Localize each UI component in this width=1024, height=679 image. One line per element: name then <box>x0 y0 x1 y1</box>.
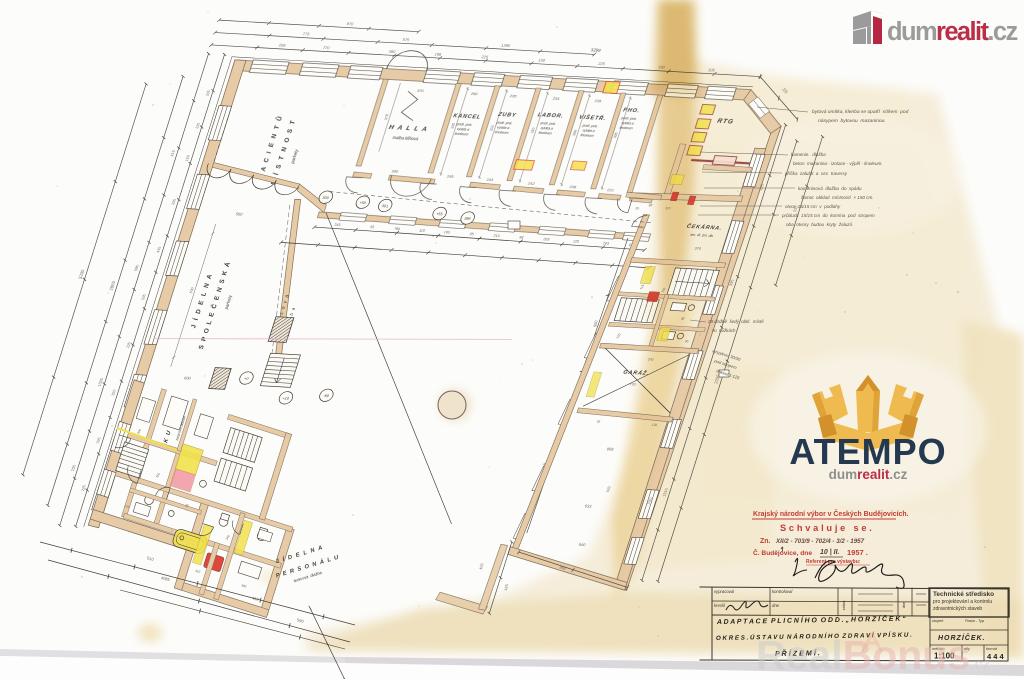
svg-text:RealBonus.cz: RealBonus.cz <box>756 632 990 678</box>
svg-text:PHO.: PHO. <box>622 108 640 115</box>
svg-text:násypem bytovou mazaninou.: násypem bytovou mazaninou. <box>818 118 886 124</box>
svg-text:vylátá a: vylátá a <box>582 129 596 134</box>
svg-text:XII/2 - 703/9 - 702/4 - 3/2 -: XII/2 - 703/9 - 702/4 - 3/2 - 1957 <box>775 538 865 545</box>
svg-text:Schvaluje se.: Schvaluje se. <box>780 523 875 533</box>
svg-text:linoleum: linoleum <box>538 131 553 136</box>
svg-text:pro projektování a kontrolu: pro projektování a kontrolu <box>933 599 992 605</box>
svg-text:průduch 15/15 cm do komína: průduch 15/15 cm do komína pod stropem <box>781 212 875 218</box>
svg-text:kontroloval: kontroloval <box>772 589 793 594</box>
svg-text:300: 300 <box>322 196 330 200</box>
svg-text:203: 203 <box>543 237 550 241</box>
svg-text:ATEMPO: ATEMPO <box>789 431 946 472</box>
svg-text:301: 301 <box>381 204 389 208</box>
svg-text:zdravotnických staveb: zdravotnických staveb <box>933 606 982 612</box>
svg-text:789: 789 <box>394 227 401 231</box>
svg-text:+55: +55 <box>436 212 444 216</box>
svg-text:370: 370 <box>694 247 702 251</box>
svg-text:+10: +10 <box>282 396 290 400</box>
svg-text:243: 243 <box>334 223 341 227</box>
svg-text:šamot obklad místností × 15: šamot obklad místností × 150 cm. <box>801 195 874 200</box>
svg-text:ZUBY: ZUBY <box>496 112 517 119</box>
svg-text:3298: 3298 <box>590 47 602 52</box>
svg-text:příčka zalubit a oss trave: příčka zalubit a oss traversy <box>784 171 848 176</box>
svg-text:linoleum: linoleum <box>494 130 509 135</box>
svg-text:kamenin. dlažba: kamenin. dlažba <box>791 152 826 157</box>
svg-text:dumrealit.cz: dumrealit.cz <box>829 467 908 482</box>
svg-text:oba otvory budou kryty žal: oba otvory budou kryty žaluzií. <box>786 222 853 227</box>
svg-text:Technické středisko: Technické středisko <box>933 591 994 598</box>
svg-text:vo nožkách: vo nožkách <box>712 328 736 333</box>
svg-text:zařad.: zařad. <box>842 600 846 611</box>
svg-text:vypracoval: vypracoval <box>714 589 735 594</box>
svg-text:linoleum: linoleum <box>454 132 469 137</box>
svg-text:bytová omítka, klenba se opatř: bytová omítka, klenba se opatří síťkem p… <box>812 109 909 115</box>
svg-text:10 | II.: 10 | II. <box>820 549 840 556</box>
svg-text:29 dlažbě šedý obkl. místě: 29 dlažbě šedý obkl. místě <box>707 319 764 324</box>
svg-text:RTG: RTG <box>716 118 735 126</box>
svg-text:vylátá a: vylátá a <box>496 126 510 131</box>
svg-text:dumrealit.cz: dumrealit.cz <box>887 18 1017 46</box>
svg-text:263: 263 <box>602 241 609 245</box>
svg-text:-80: -80 <box>323 394 330 398</box>
svg-text:286: 286 <box>464 217 472 221</box>
svg-text:213: 213 <box>493 234 500 238</box>
svg-text:110: 110 <box>419 229 426 233</box>
svg-text:stupeň: stupeň <box>932 619 943 623</box>
svg-text:otvor 15/15 cm v podlahy: otvor 15/15 cm v podlahy <box>785 204 841 209</box>
svg-text:Krajský národní výbor v Českýc: Krajský národní výbor v Českých Budějovi… <box>753 509 909 518</box>
svg-text:193: 193 <box>443 230 450 234</box>
svg-text:kameninová dlažba do spádu: kameninová dlažba do spádu <box>798 186 862 191</box>
svg-text:linoleum: linoleum <box>580 133 595 138</box>
svg-text:Zn.: Zn. <box>760 538 771 545</box>
svg-text:Pasta - Typ: Pasta - Typ <box>965 619 984 623</box>
svg-text:formát: formát <box>986 647 998 651</box>
svg-text:1957 .: 1957 . <box>847 548 868 557</box>
svg-text:120: 120 <box>573 239 580 243</box>
svg-text:vylátá a: vylátá a <box>540 126 554 131</box>
svg-text:+50: +50 <box>359 201 367 205</box>
svg-text:kreslil: kreslil <box>714 603 726 608</box>
svg-text:vylátá a: vylátá a <box>456 127 470 132</box>
svg-text:dne: dne <box>772 603 780 608</box>
svg-text:dne: dne <box>902 602 906 608</box>
svg-text:beton mazanina - izolace - vý: beton mazanina - izolace - výplň - linol… <box>793 161 883 166</box>
